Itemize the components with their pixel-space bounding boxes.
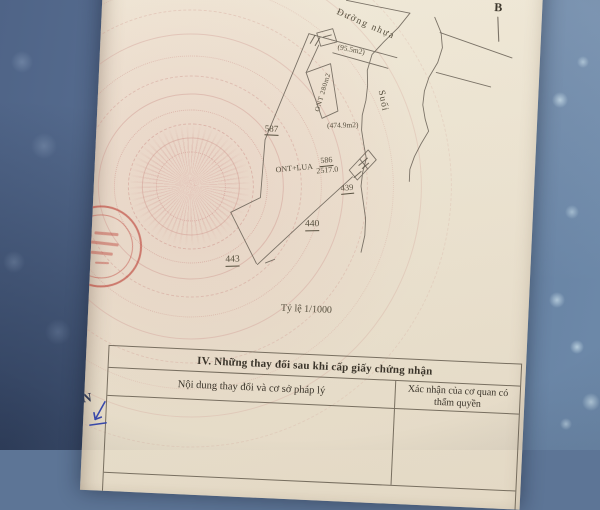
- certificate-page: B Đường nhựa Suối (95.5m2) ONT 280m2 (47…: [80, 0, 544, 510]
- blue-pen-mark: [80, 0, 544, 510]
